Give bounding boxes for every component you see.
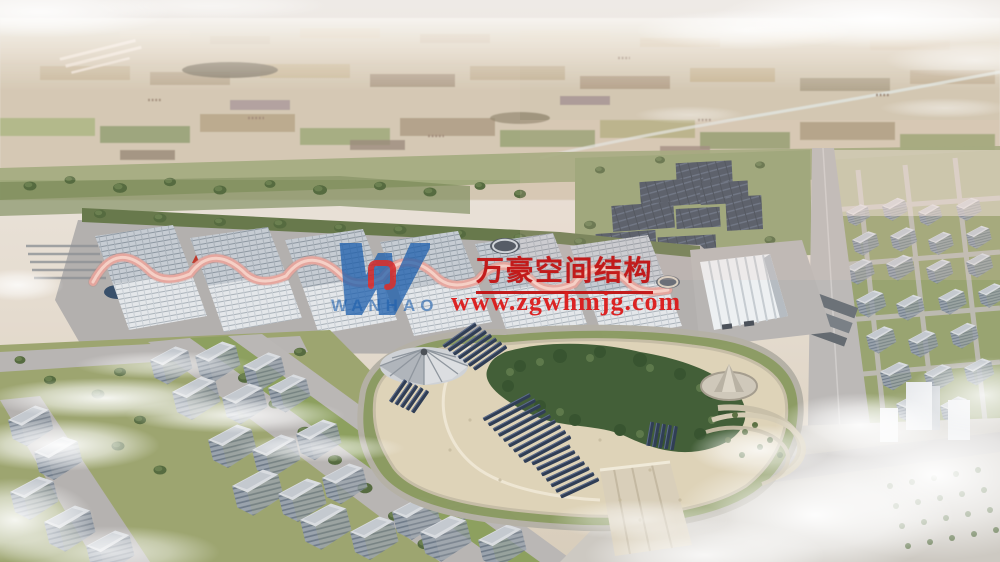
pink-haze	[520, 120, 1000, 280]
round-pavilion	[490, 238, 520, 254]
warm-haze	[0, 60, 520, 180]
rendering-stage: WANHAO 万豪空间结构 www.zgwhmjg.com	[0, 0, 1000, 562]
aerial-rendering	[0, 0, 1000, 562]
